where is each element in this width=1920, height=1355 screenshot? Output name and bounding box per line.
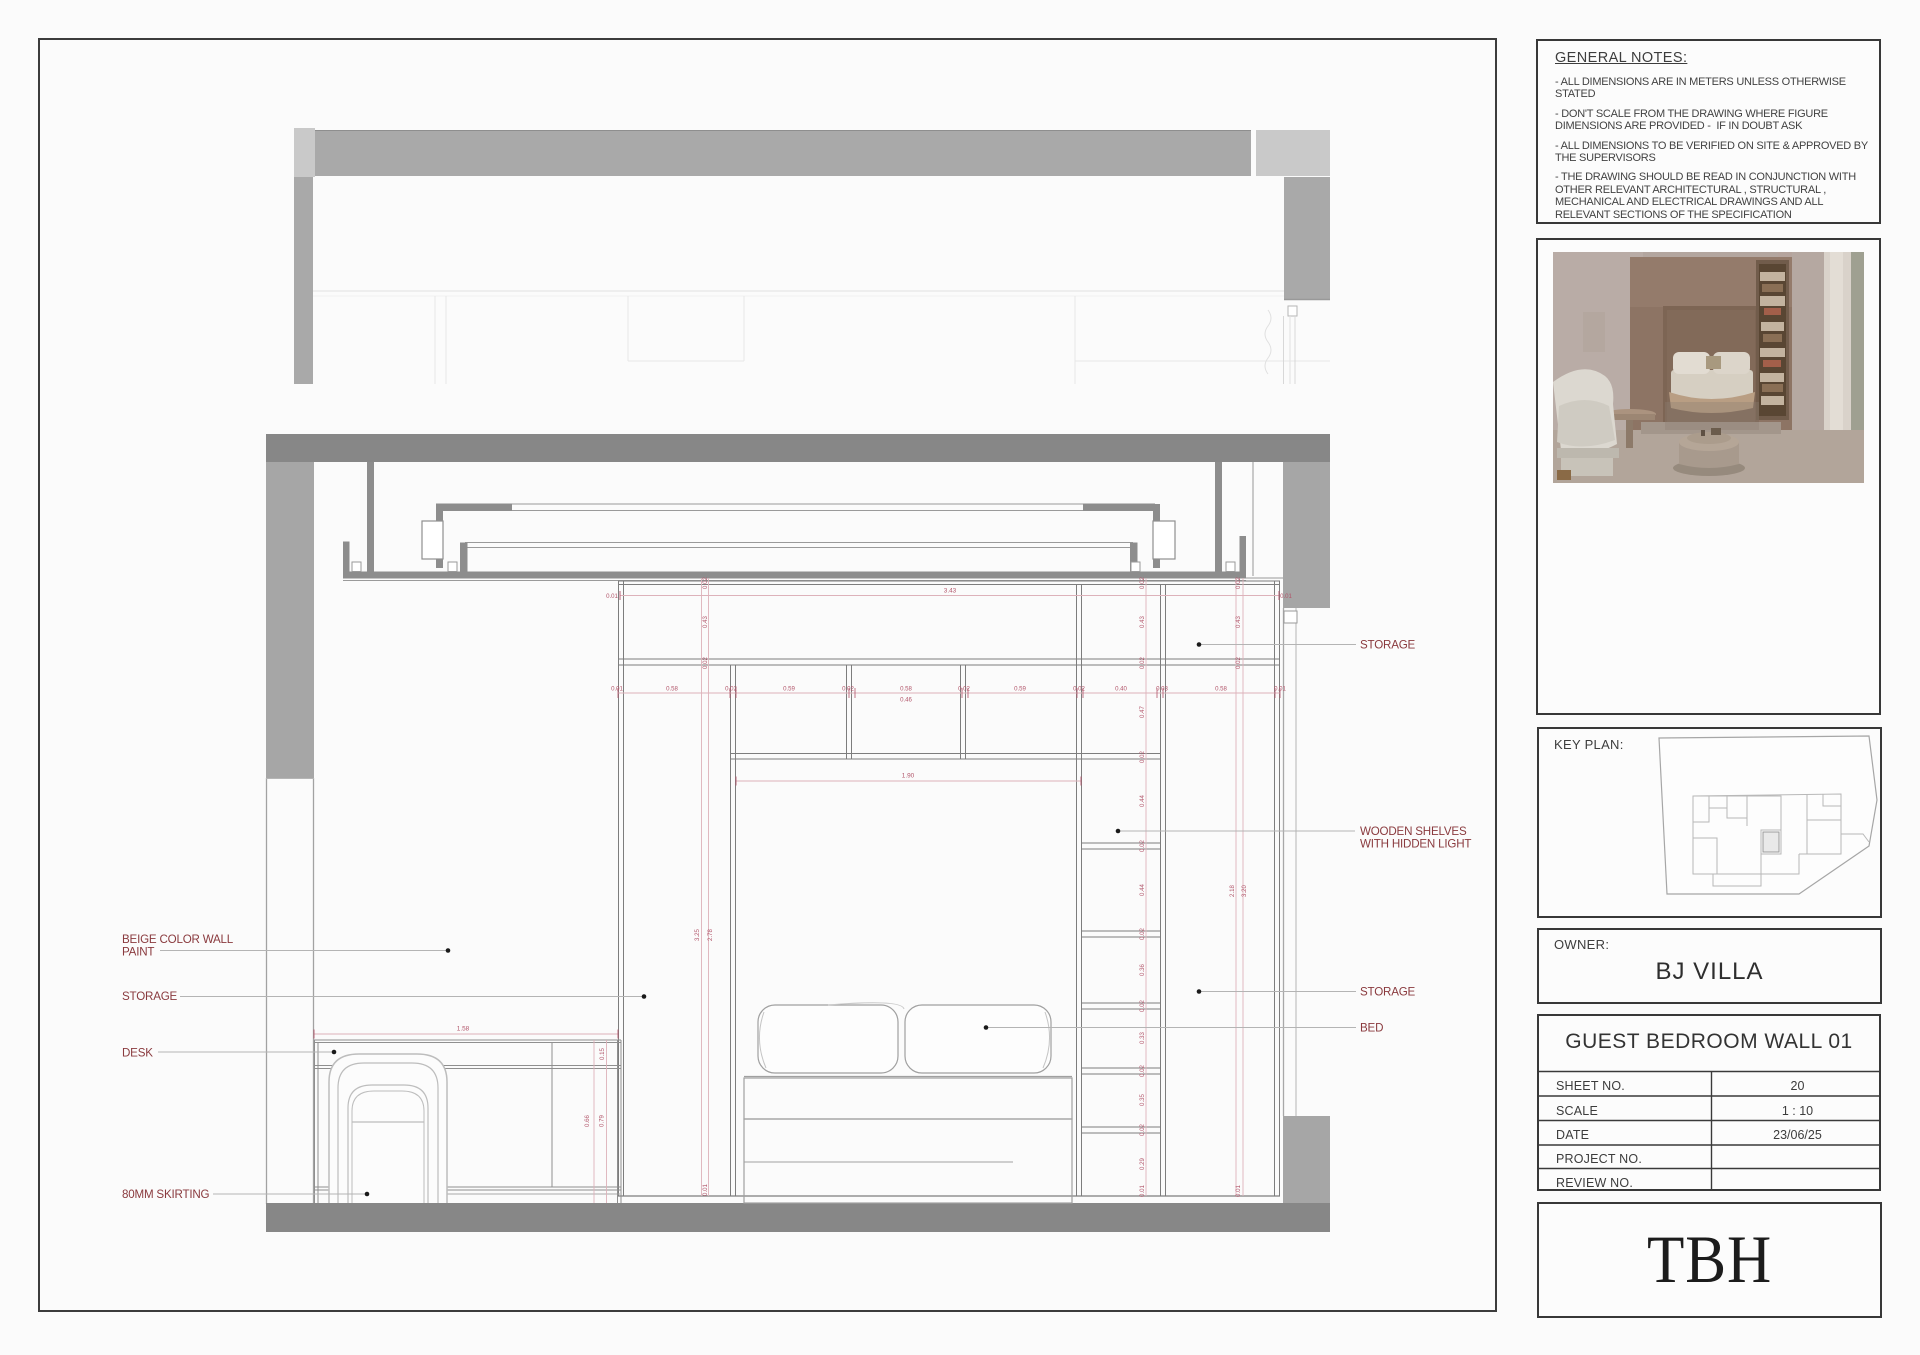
- svg-text:0.02: 0.02: [1235, 656, 1242, 668]
- svg-text:BED: BED: [1360, 1022, 1383, 1035]
- svg-text:0.02: 0.02: [1139, 656, 1146, 668]
- svg-text:2.18: 2.18: [1229, 884, 1236, 896]
- svg-text:0.01: 0.01: [611, 686, 623, 693]
- svg-text:0.15: 0.15: [599, 1047, 606, 1059]
- svg-text:2.78: 2.78: [707, 928, 714, 940]
- svg-text:0.02: 0.02: [702, 576, 709, 588]
- svg-text:0.58: 0.58: [900, 686, 912, 693]
- svg-text:0.01: 0.01: [1280, 593, 1292, 600]
- svg-text:0.02: 0.02: [1235, 576, 1242, 588]
- svg-text:0.01: 0.01: [702, 1183, 709, 1195]
- svg-text:0.58: 0.58: [1215, 686, 1227, 693]
- svg-text:0.59: 0.59: [783, 686, 795, 693]
- svg-text:0.66: 0.66: [584, 1114, 591, 1126]
- svg-text:0.29: 0.29: [1139, 1157, 1146, 1169]
- svg-text:0.02: 0.02: [1139, 839, 1146, 851]
- svg-text:3.20: 3.20: [1241, 884, 1248, 896]
- svg-text:0.02: 0.02: [702, 656, 709, 668]
- svg-text:80MM SKIRTING: 80MM SKIRTING: [122, 1188, 210, 1201]
- svg-text:0.43: 0.43: [702, 615, 709, 627]
- svg-text:3.43: 3.43: [944, 588, 957, 595]
- svg-text:0.33: 0.33: [1139, 1031, 1146, 1043]
- svg-text:0.02: 0.02: [1139, 999, 1146, 1011]
- svg-text:0.02: 0.02: [1139, 1064, 1146, 1076]
- svg-text:0.46: 0.46: [900, 697, 912, 704]
- svg-text:0.47: 0.47: [1139, 705, 1146, 717]
- svg-text:0.02: 0.02: [1139, 1123, 1146, 1135]
- svg-text:1.90: 1.90: [902, 773, 915, 780]
- svg-text:0.44: 0.44: [1139, 883, 1146, 895]
- svg-text:WOODEN SHELVES: WOODEN SHELVES: [1360, 825, 1467, 838]
- svg-text:0.79: 0.79: [599, 1114, 606, 1126]
- svg-text:0.02: 0.02: [958, 686, 970, 693]
- svg-text:1.58: 1.58: [457, 1026, 470, 1033]
- svg-text:0.59: 0.59: [1014, 686, 1026, 693]
- svg-text:STORAGE: STORAGE: [122, 990, 178, 1003]
- svg-text:0.02: 0.02: [1139, 750, 1146, 762]
- svg-text:3.25: 3.25: [694, 928, 701, 940]
- svg-text:STORAGE: STORAGE: [1360, 639, 1416, 652]
- svg-text:0.02: 0.02: [842, 686, 854, 693]
- svg-text:0.43: 0.43: [1235, 615, 1242, 627]
- svg-text:0.44: 0.44: [1139, 794, 1146, 806]
- svg-text:BEIGE COLOR WALL: BEIGE COLOR WALL: [122, 933, 234, 946]
- svg-text:STORAGE: STORAGE: [1360, 986, 1416, 999]
- svg-text:0.01: 0.01: [1235, 1184, 1242, 1196]
- svg-text:0.02: 0.02: [1139, 927, 1146, 939]
- svg-text:0.36: 0.36: [1139, 963, 1146, 975]
- svg-text:0.58: 0.58: [666, 686, 678, 693]
- svg-text:0.03: 0.03: [1156, 686, 1168, 693]
- svg-text:WITH HIDDEN LIGHT: WITH HIDDEN LIGHT: [1360, 837, 1471, 850]
- svg-text:0.43: 0.43: [1139, 615, 1146, 627]
- svg-text:0.35: 0.35: [1139, 1093, 1146, 1105]
- svg-text:DESK: DESK: [122, 1047, 153, 1060]
- svg-text:0.02: 0.02: [1139, 576, 1146, 588]
- svg-text:0.02: 0.02: [1073, 686, 1085, 693]
- svg-text:0.01: 0.01: [1139, 1184, 1146, 1196]
- svg-text:0.01: 0.01: [606, 593, 618, 600]
- svg-text:0.40: 0.40: [1115, 686, 1127, 693]
- svg-text:PAINT: PAINT: [122, 945, 154, 958]
